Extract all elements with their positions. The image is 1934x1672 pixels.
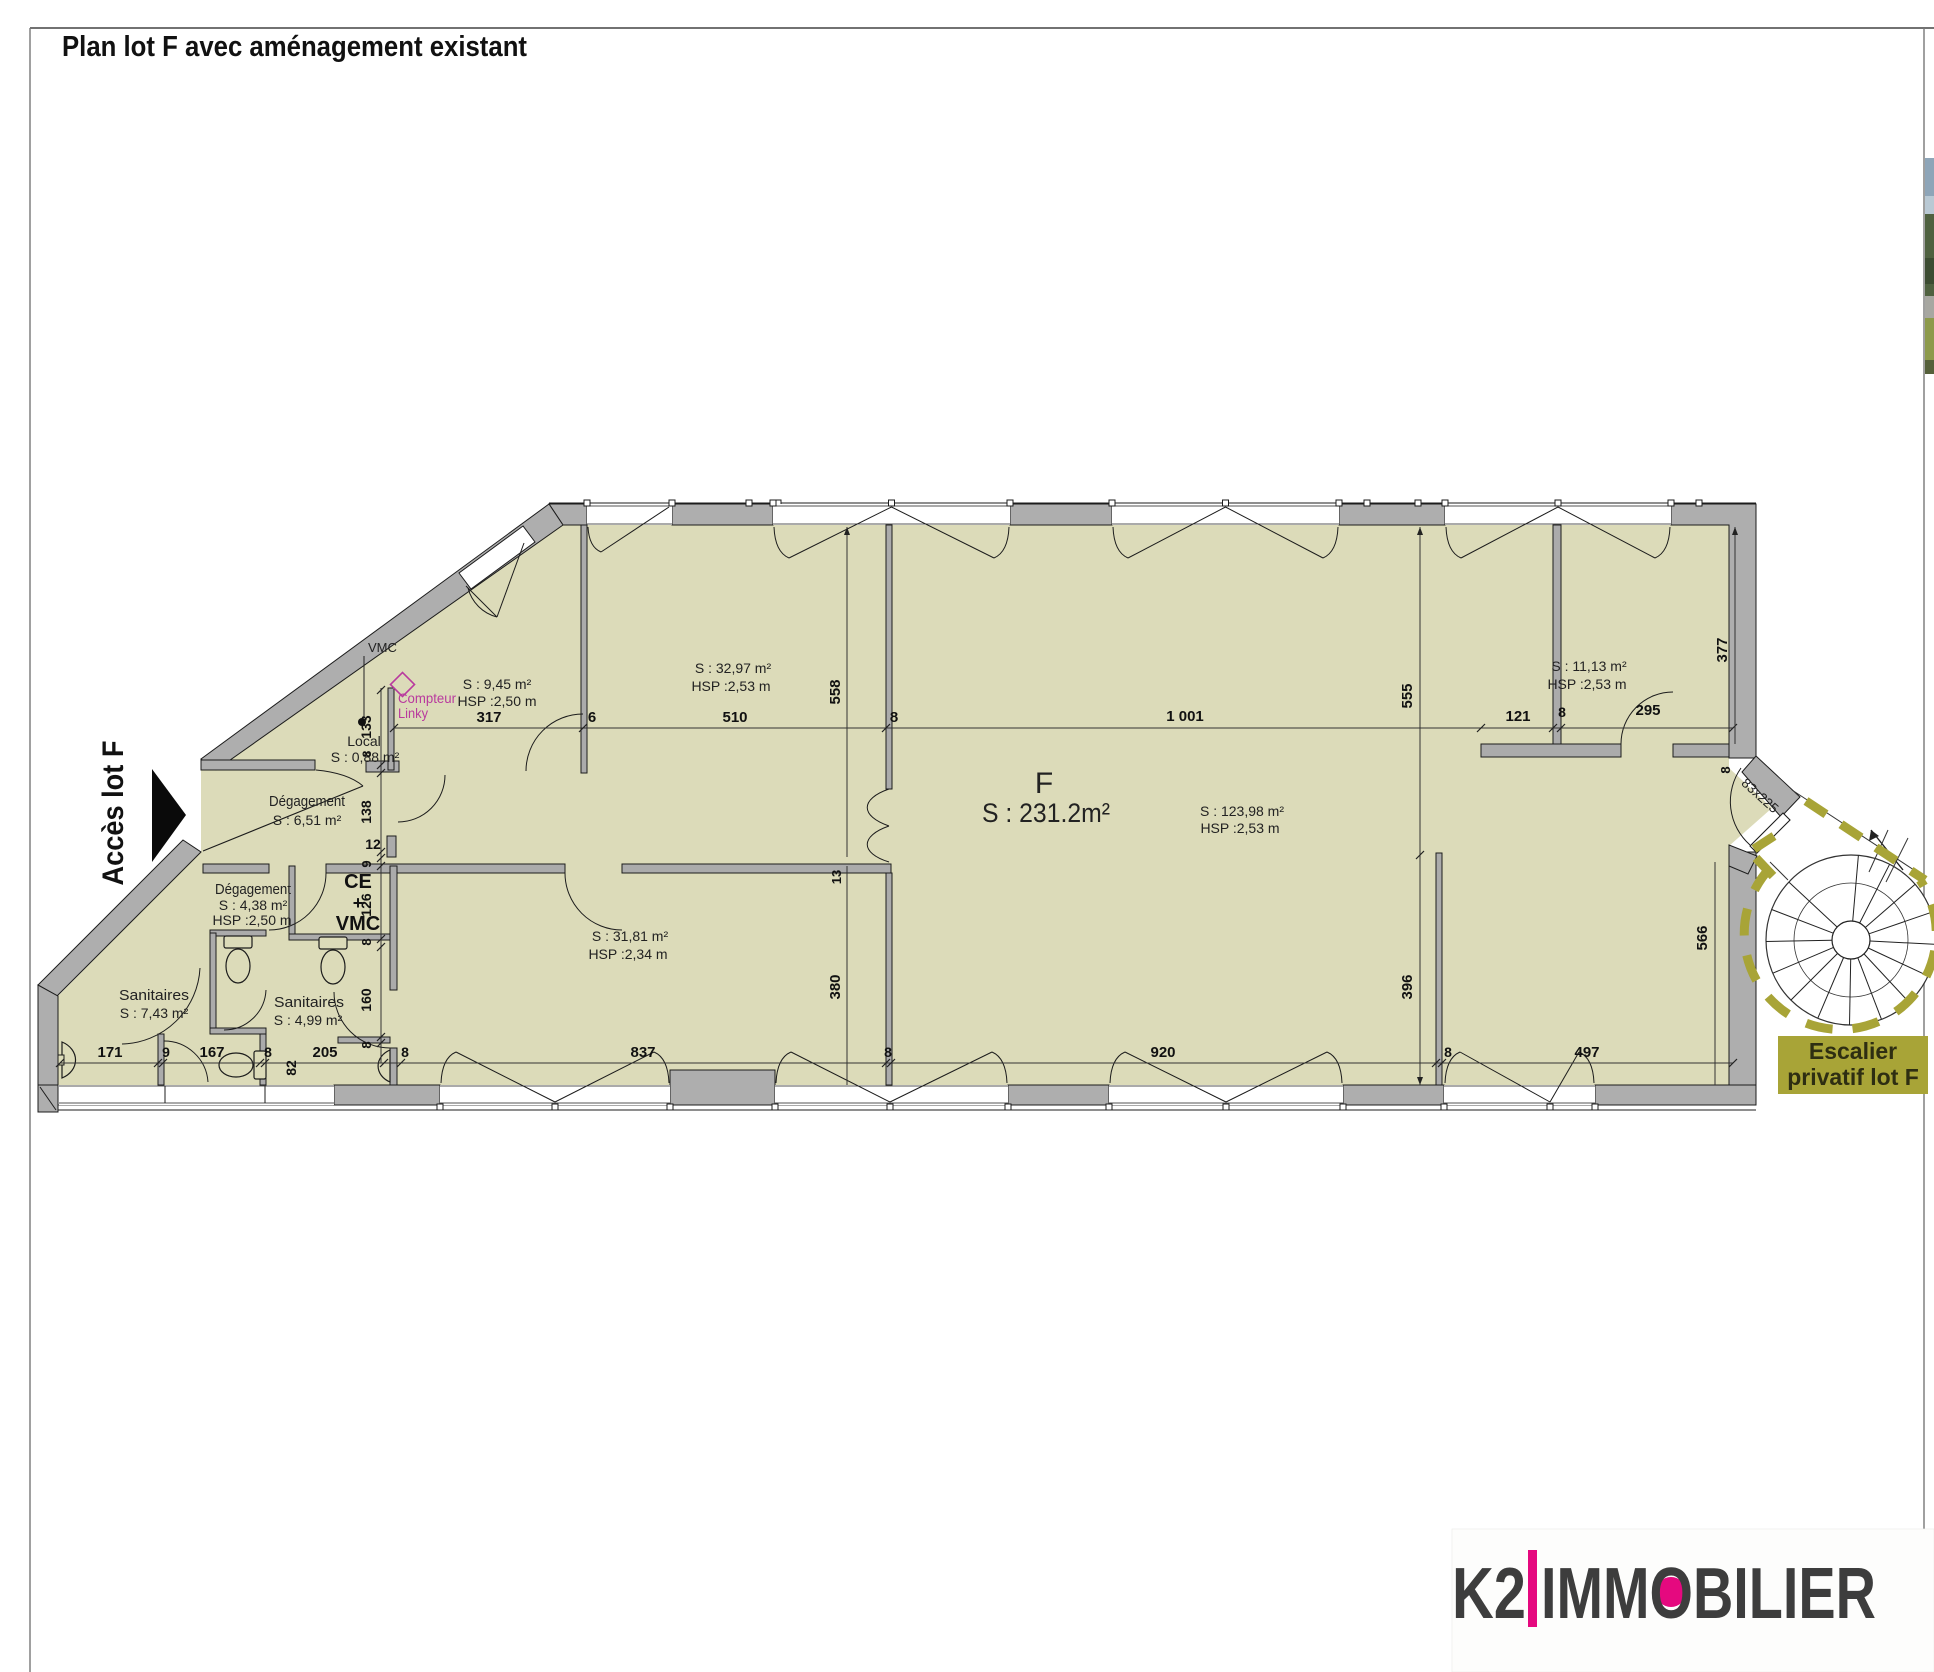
svg-text:12: 12 (365, 836, 381, 852)
svg-text:Escalier: Escalier (1809, 1038, 1897, 1064)
svg-text:S : 6,51 m²: S : 6,51 m² (273, 812, 342, 828)
svg-text:8: 8 (890, 709, 898, 726)
svg-text:S : 11,13 m²: S : 11,13 m² (1551, 658, 1627, 674)
svg-text:8: 8 (884, 1044, 892, 1060)
svg-text:558: 558 (827, 679, 844, 704)
svg-text:S : 231.2m²: S : 231.2m² (982, 798, 1110, 828)
svg-text:566: 566 (1694, 925, 1711, 950)
svg-text:Compteur: Compteur (398, 690, 456, 706)
svg-text:VMC: VMC (368, 640, 397, 655)
svg-text:Sanitaires: Sanitaires (274, 994, 344, 1011)
svg-text:8: 8 (264, 1044, 272, 1060)
svg-text:377: 377 (1714, 637, 1731, 662)
svg-text:837: 837 (630, 1044, 655, 1061)
svg-text:205: 205 (312, 1044, 337, 1061)
svg-text:380: 380 (827, 974, 844, 999)
svg-text:HSP :2,50 m: HSP :2,50 m (457, 693, 536, 709)
svg-text:396: 396 (1399, 974, 1416, 999)
svg-text:HSP :2,34 m: HSP :2,34 m (588, 946, 667, 962)
svg-text:S : 32,97 m²: S : 32,97 m² (695, 660, 772, 676)
svg-text:317: 317 (476, 709, 501, 726)
svg-text:Accès lot F: Accès lot F (97, 741, 130, 886)
svg-text:82: 82 (283, 1060, 299, 1076)
svg-text:HSP :2,53 m: HSP :2,53 m (691, 678, 770, 694)
svg-text:6: 6 (588, 709, 596, 726)
svg-text:1 001: 1 001 (1166, 708, 1204, 725)
svg-text:S : 4,99 m²: S : 4,99 m² (274, 1012, 343, 1028)
svg-text:CE: CE (344, 871, 372, 893)
svg-text:8: 8 (359, 938, 374, 945)
svg-text:HSP :2,53 m: HSP :2,53 m (1547, 676, 1626, 692)
svg-text:295: 295 (1635, 702, 1660, 719)
svg-text:167: 167 (199, 1044, 224, 1061)
svg-text:8: 8 (401, 1044, 409, 1060)
svg-text:S : 31,81 m²: S : 31,81 m² (592, 928, 669, 944)
svg-text:497: 497 (1574, 1044, 1599, 1061)
svg-text:HSP :2,50 m: HSP :2,50 m (212, 912, 291, 928)
svg-text:126: 126 (358, 893, 374, 917)
svg-text:IMMOBILIER: IMMOBILIER (1541, 1554, 1876, 1634)
svg-text:Linky: Linky (398, 705, 428, 721)
svg-text:510: 510 (722, 709, 747, 726)
svg-text:160: 160 (358, 988, 374, 1012)
svg-text:8: 8 (1718, 766, 1733, 773)
svg-text:121: 121 (1505, 708, 1530, 725)
svg-text:F: F (1035, 767, 1053, 800)
svg-text:Dégagement: Dégagement (215, 881, 292, 898)
svg-text:9: 9 (162, 1044, 170, 1060)
svg-text:171: 171 (97, 1044, 122, 1061)
svg-text:920: 920 (1150, 1044, 1175, 1061)
svg-text:9: 9 (359, 860, 374, 867)
svg-text:138: 138 (358, 800, 374, 824)
svg-text:HSP :2,53 m: HSP :2,53 m (1200, 820, 1279, 836)
svg-text:Plan lot F avec aménagement ex: Plan lot F avec aménagement existant (62, 31, 527, 63)
svg-text:S : 7,43 m²: S : 7,43 m² (120, 1005, 189, 1021)
svg-text:8: 8 (359, 1041, 374, 1048)
svg-text:555: 555 (1399, 683, 1416, 708)
svg-text:Sanitaires: Sanitaires (119, 987, 189, 1004)
svg-text:8: 8 (1558, 704, 1566, 720)
svg-text:13: 13 (829, 870, 844, 884)
svg-text:S : 123,98 m²: S : 123,98 m² (1200, 803, 1284, 819)
svg-text:Dégagement: Dégagement (269, 793, 346, 810)
svg-text:K2: K2 (1452, 1554, 1526, 1634)
svg-text:8: 8 (1444, 1044, 1452, 1060)
svg-text:S : 4,38 m²: S : 4,38 m² (219, 897, 288, 913)
svg-text:S : 9,45 m²: S : 9,45 m² (463, 676, 532, 692)
svg-text:privatif lot F: privatif lot F (1787, 1064, 1919, 1090)
svg-text:133: 133 (358, 715, 374, 739)
svg-text:8: 8 (360, 750, 374, 757)
